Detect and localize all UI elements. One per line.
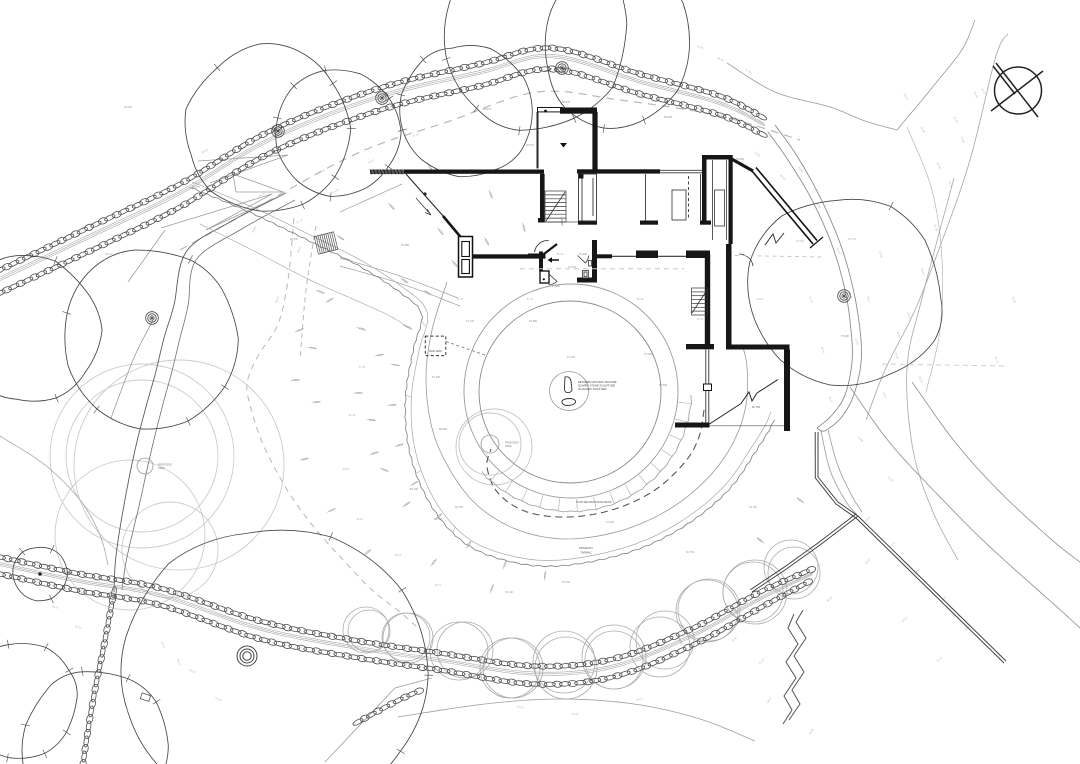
svg-text:55.15: 55.15 xyxy=(637,297,644,301)
svg-text:57.000: 57.000 xyxy=(659,383,667,387)
svg-text:58.50: 58.50 xyxy=(557,252,564,256)
svg-text:59.000: 59.000 xyxy=(124,105,132,109)
svg-text:TARMAC: TARMAC xyxy=(580,550,591,554)
svg-text:57.100: 57.100 xyxy=(432,375,440,379)
svg-text:57.450: 57.450 xyxy=(529,319,537,323)
svg-text:58.000: 58.000 xyxy=(290,237,298,241)
svg-text:57.000: 57.000 xyxy=(552,284,560,288)
svg-text:50.25: 50.25 xyxy=(349,413,356,417)
svg-text:51.000: 51.000 xyxy=(796,239,804,243)
svg-text:60.67: 60.67 xyxy=(357,517,364,521)
svg-text:PLANTED RETAINING BANK: PLANTED RETAINING BANK xyxy=(576,500,612,504)
svg-text:52.500: 52.500 xyxy=(562,580,570,584)
svg-text:IN QUARRY ROCK BED: IN QUARRY ROCK BED xyxy=(578,387,607,391)
svg-text:54.750: 54.750 xyxy=(749,505,757,509)
svg-text:56.500: 56.500 xyxy=(664,115,672,119)
svg-text:QUARRY STONE SCULPTURE: QUARRY STONE SCULPTURE xyxy=(578,384,615,388)
svg-text:61.81: 61.81 xyxy=(757,297,764,301)
svg-text:DRIVEWAY: DRIVEWAY xyxy=(579,546,593,550)
svg-text:57.000: 57.000 xyxy=(841,334,849,338)
svg-text:57.000: 57.000 xyxy=(579,252,587,256)
svg-text:57.100: 57.100 xyxy=(466,319,474,323)
svg-text:54.750: 54.750 xyxy=(434,517,442,521)
svg-text:56.575: 56.575 xyxy=(526,143,534,147)
svg-text:50.750: 50.750 xyxy=(455,505,463,509)
svg-text:57.000: 57.000 xyxy=(644,352,652,356)
svg-text:55.100: 55.100 xyxy=(410,487,418,491)
svg-text:53.100: 53.100 xyxy=(505,590,513,594)
svg-text:56.575: 56.575 xyxy=(483,107,491,111)
svg-text:TREE: TREE xyxy=(505,445,512,448)
svg-text:56.000: 56.000 xyxy=(439,427,447,431)
svg-text:55.750: 55.750 xyxy=(848,237,856,241)
svg-text:SOAK AWAY: SOAK AWAY xyxy=(429,350,443,353)
svg-text:53.77: 53.77 xyxy=(435,583,442,587)
svg-text:TREE: TREE xyxy=(158,467,165,470)
svg-text:51.000: 51.000 xyxy=(606,520,614,524)
svg-text:50.750: 50.750 xyxy=(686,550,694,554)
svg-text:57.63: 57.63 xyxy=(359,365,366,369)
svg-text:51.53: 51.53 xyxy=(457,297,464,301)
svg-text:57.000: 57.000 xyxy=(567,355,575,359)
svg-text:RETAINED HISTORIC FEATURE: RETAINED HISTORIC FEATURE xyxy=(578,380,617,384)
svg-text:56.53: 56.53 xyxy=(395,553,402,557)
svg-text:61.33: 61.33 xyxy=(572,712,579,716)
svg-text:60.750: 60.750 xyxy=(752,405,761,409)
svg-text:53.87: 53.87 xyxy=(343,467,350,471)
svg-text:51.72: 51.72 xyxy=(527,297,534,301)
svg-text:59.19: 59.19 xyxy=(697,317,704,321)
svg-text:56.575: 56.575 xyxy=(562,100,570,104)
svg-text:57.450: 57.450 xyxy=(401,243,409,247)
